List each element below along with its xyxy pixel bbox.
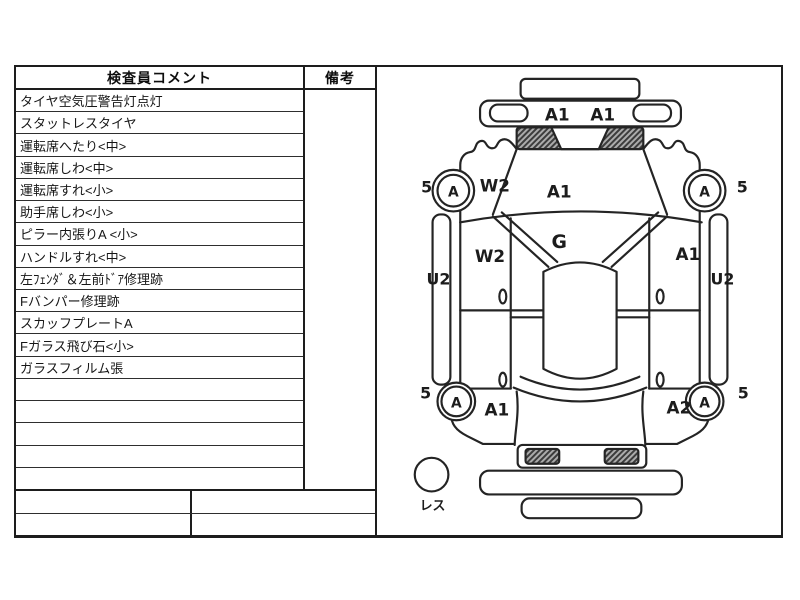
footer-cell [192, 491, 375, 513]
comment-row: スタットレスタイヤ [16, 111, 303, 133]
front-grille [521, 79, 640, 99]
right-rear-wheel-mark: A [699, 395, 710, 411]
tailgate-edges [515, 392, 646, 445]
comment-row: ガラスフィルム張 [16, 356, 303, 378]
comment-row: 運転席すれ<小> [16, 178, 303, 200]
right-front-wheel-mark: A [699, 185, 710, 201]
right-door-divider [618, 310, 700, 317]
footer-cell [192, 514, 375, 536]
left-front-door-mark: W2 [475, 246, 505, 266]
right-rear-wheel-size: 5 [738, 383, 749, 402]
left-headlight [490, 105, 528, 122]
right-a-pillar [603, 212, 667, 266]
right-front-door-mark: A1 [675, 244, 700, 264]
windshield-mark: G [552, 232, 567, 253]
right-headlight [633, 105, 671, 122]
left-rear-wheel-mark: A [451, 395, 462, 411]
left-rear-quarter-mark: A1 [485, 399, 510, 419]
comment-row-empty [16, 467, 303, 489]
door-handle [499, 373, 506, 387]
footer-cell [16, 514, 192, 536]
right-sill-panel [710, 214, 728, 384]
door-handle [499, 290, 506, 304]
comment-row: 左ﾌｪﾝﾀﾞ＆左前ﾄﾞｱ修理跡 [16, 267, 303, 289]
right-tail-light [605, 449, 639, 464]
left-front-wheel-mark: A [448, 185, 459, 201]
car-damage-diagram: A1 A1 A1 G W2 W2 A1 U2 U2 A1 A2 A A A A … [377, 67, 781, 535]
comment-row-empty [16, 378, 303, 400]
right-rear-quarter-mark: A2 [667, 397, 692, 417]
cowl-center-window [551, 127, 608, 149]
inspector-comments-table: 検査員コメント 備考 タイヤ空気圧警告灯点灯 スタットレスタイヤ 運転席へたり<… [16, 67, 377, 535]
comment-row: Fバンパー修理跡 [16, 289, 303, 311]
car-diagram-svg: A1 A1 A1 G W2 W2 A1 U2 U2 A1 A2 A A A A … [377, 67, 781, 535]
door-handle [657, 290, 664, 304]
remarks-column-header: 備考 [305, 67, 375, 88]
comment-row-empty [16, 400, 303, 422]
door-handle [657, 373, 664, 387]
table-body: タイヤ空気圧警告灯点灯 スタットレスタイヤ 運転席へたり<中> 運転席しわ<中>… [16, 90, 375, 489]
comment-row: Fガラス飛び石<小> [16, 333, 303, 355]
front-bumper-mark-left: A1 [545, 104, 570, 124]
table-footer [16, 489, 375, 535]
comment-row: 運転席へたり<中> [16, 133, 303, 155]
footer-cell [16, 491, 192, 513]
hood-mark: A1 [547, 182, 572, 202]
footer-row [16, 513, 375, 536]
left-front-wheel-size: 5 [421, 178, 432, 197]
table-header-row: 検査員コメント 備考 [16, 67, 375, 90]
left-sill-panel [433, 214, 451, 384]
left-door-divider [460, 310, 542, 317]
front-bumper-mark-right: A1 [590, 104, 615, 124]
left-front-fender-mark: W2 [480, 176, 510, 196]
comment-row: 運転席しわ<中> [16, 156, 303, 178]
spare-tire-circle [415, 458, 449, 492]
left-sill-mark: U2 [427, 270, 451, 289]
comment-row-empty [16, 422, 303, 444]
footer-row [16, 491, 375, 513]
sheet-frame: 検査員コメント 備考 タイヤ空気圧警告灯点灯 スタットレスタイヤ 運転席へたり<… [14, 65, 783, 538]
comment-row: 助手席しわ<小> [16, 200, 303, 222]
hood-right-edge [643, 149, 667, 214]
comment-row: ピラー内張りA <小> [16, 222, 303, 244]
left-rear-wheel-size: 5 [420, 383, 431, 402]
remarks-cell [305, 90, 375, 489]
right-sill-mark: U2 [711, 270, 735, 289]
comments-column: タイヤ空気圧警告灯点灯 スタットレスタイヤ 運転席へたり<中> 運転席しわ<中>… [16, 90, 305, 489]
roof-panel [543, 262, 616, 378]
comment-row-empty [16, 445, 303, 467]
right-front-wheel-size: 5 [737, 178, 748, 197]
rear-bumper [480, 471, 682, 495]
left-tail-light [526, 449, 560, 464]
auction-inspection-sheet: 検査員コメント 備考 タイヤ空気圧警告灯点灯 スタットレスタイヤ 運転席へたり<… [0, 0, 800, 600]
rear-plate [522, 498, 642, 518]
comment-row: スカッフプレートA [16, 311, 303, 333]
comment-row: ハンドルすれ<中> [16, 245, 303, 267]
comments-column-header: 検査員コメント [16, 67, 305, 88]
spare-tire-label: レス [420, 499, 446, 514]
comment-row: タイヤ空気圧警告灯点灯 [16, 90, 303, 111]
